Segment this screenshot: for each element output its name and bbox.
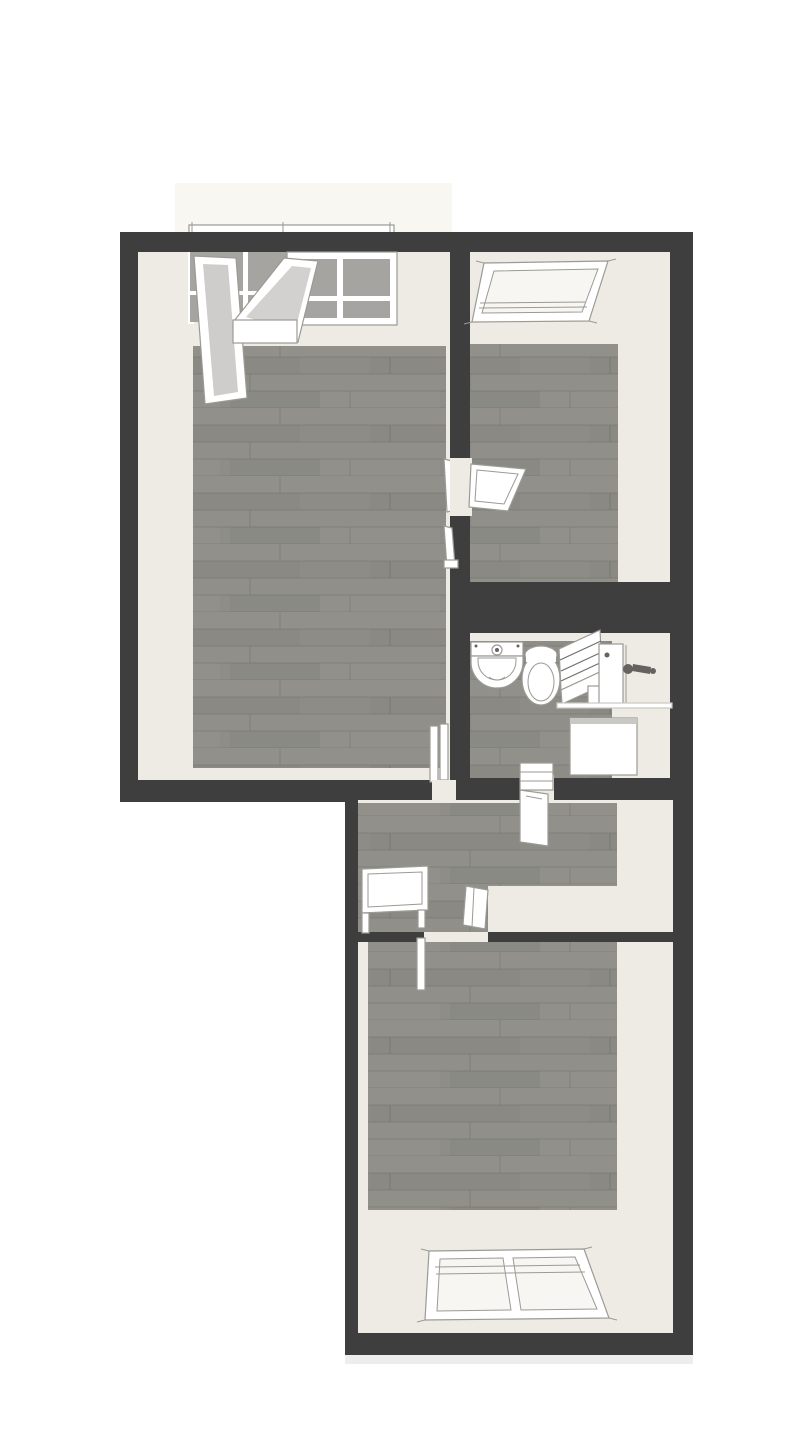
hallway <box>358 780 673 933</box>
room-top-left-floor <box>193 346 446 768</box>
floorplan-canvas <box>0 0 812 1444</box>
floorplan-svg <box>0 0 812 1444</box>
door-threshold-to-bottom-room <box>463 886 488 929</box>
sink <box>471 642 523 688</box>
double-roof-window <box>417 1247 617 1322</box>
room-top-right-floor <box>470 344 618 582</box>
door-leaf-open <box>417 938 425 990</box>
room-bottom-floor <box>368 942 617 1210</box>
door-threshold <box>520 763 553 790</box>
door-handle-dot <box>605 653 610 658</box>
wall-bottom-shadow <box>345 1355 693 1364</box>
tilted-sash-bottom <box>233 320 297 343</box>
white-appliance <box>570 718 637 775</box>
toilet <box>522 646 560 705</box>
door-opening-from-hallway <box>424 932 488 942</box>
bathroom-door-leaf <box>520 790 548 846</box>
room-bottom <box>358 932 673 1333</box>
ledge-line <box>557 703 672 708</box>
room-top-left <box>138 252 458 782</box>
room-top-right <box>450 252 670 582</box>
bathroom <box>470 630 672 800</box>
window-right-mullion-vertical <box>337 257 343 320</box>
door-opening-from-room-top-left <box>432 780 456 802</box>
